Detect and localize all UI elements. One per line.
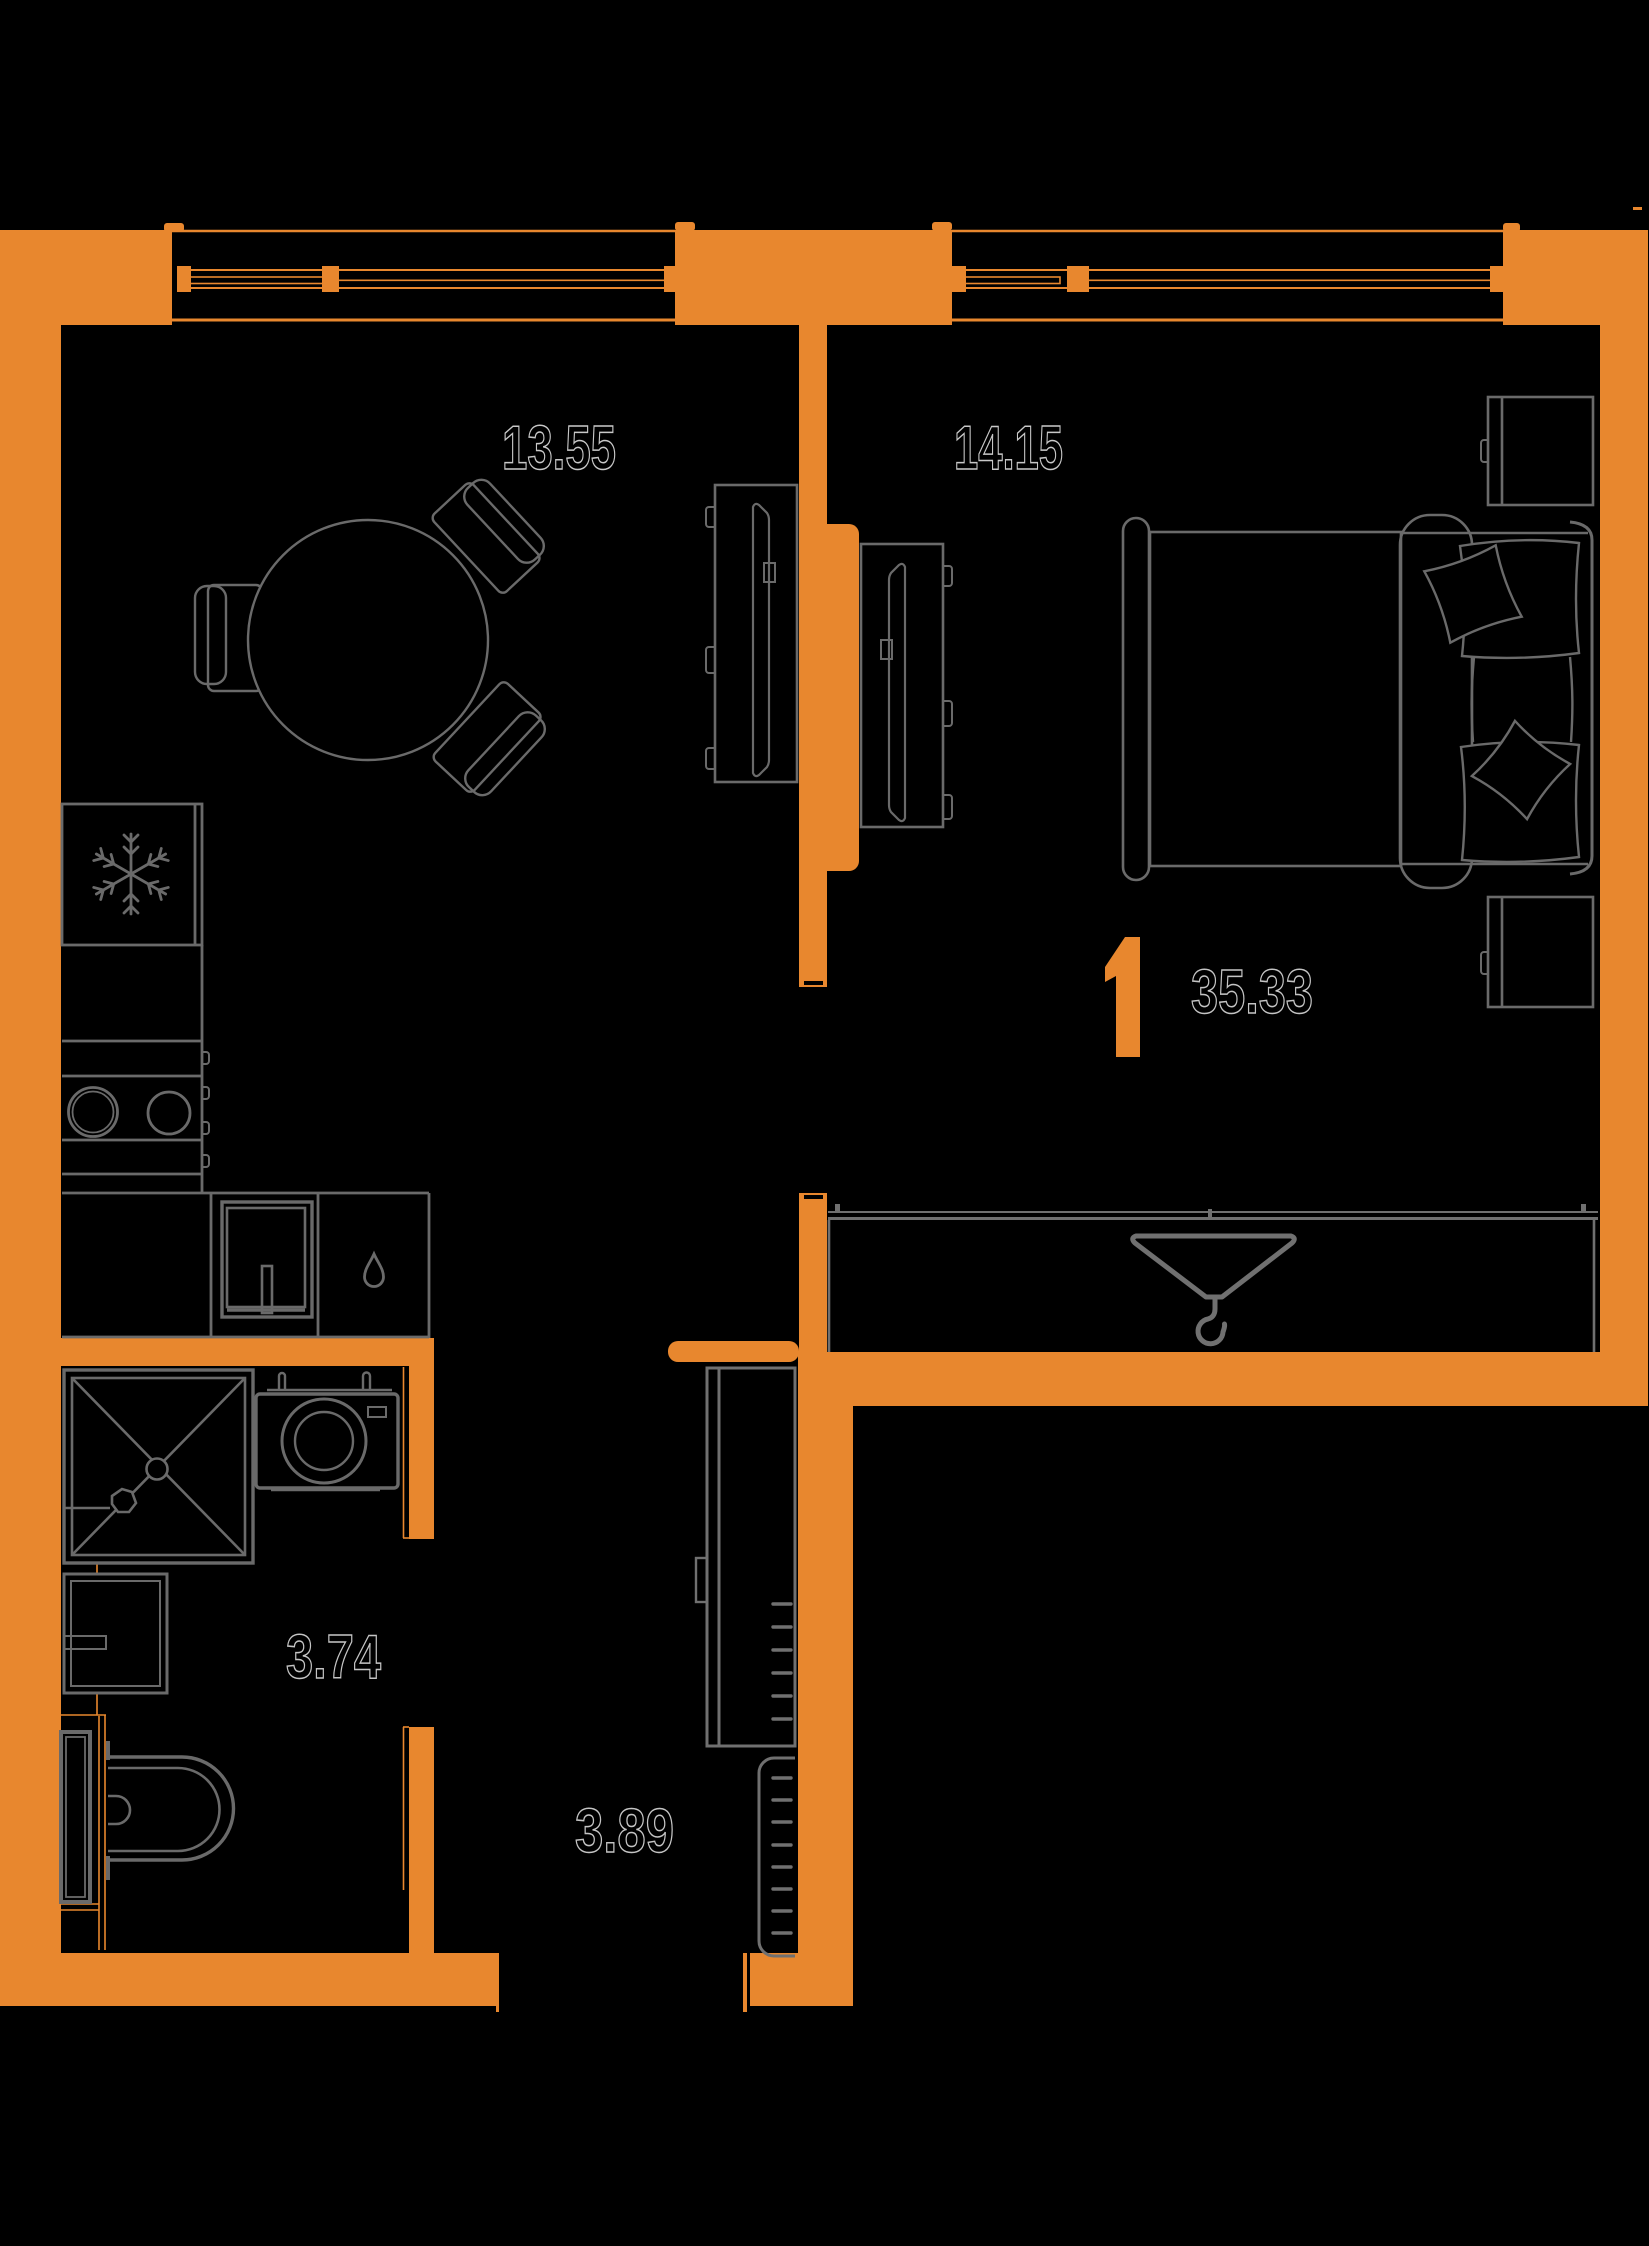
svg-text:3.89: 3.89: [575, 1797, 674, 1866]
svg-text:35.33: 35.33: [1191, 958, 1313, 1027]
svg-text:14.15: 14.15: [954, 414, 1063, 483]
svg-text:3.74: 3.74: [286, 1623, 381, 1692]
svg-text:13.55: 13.55: [502, 414, 616, 483]
